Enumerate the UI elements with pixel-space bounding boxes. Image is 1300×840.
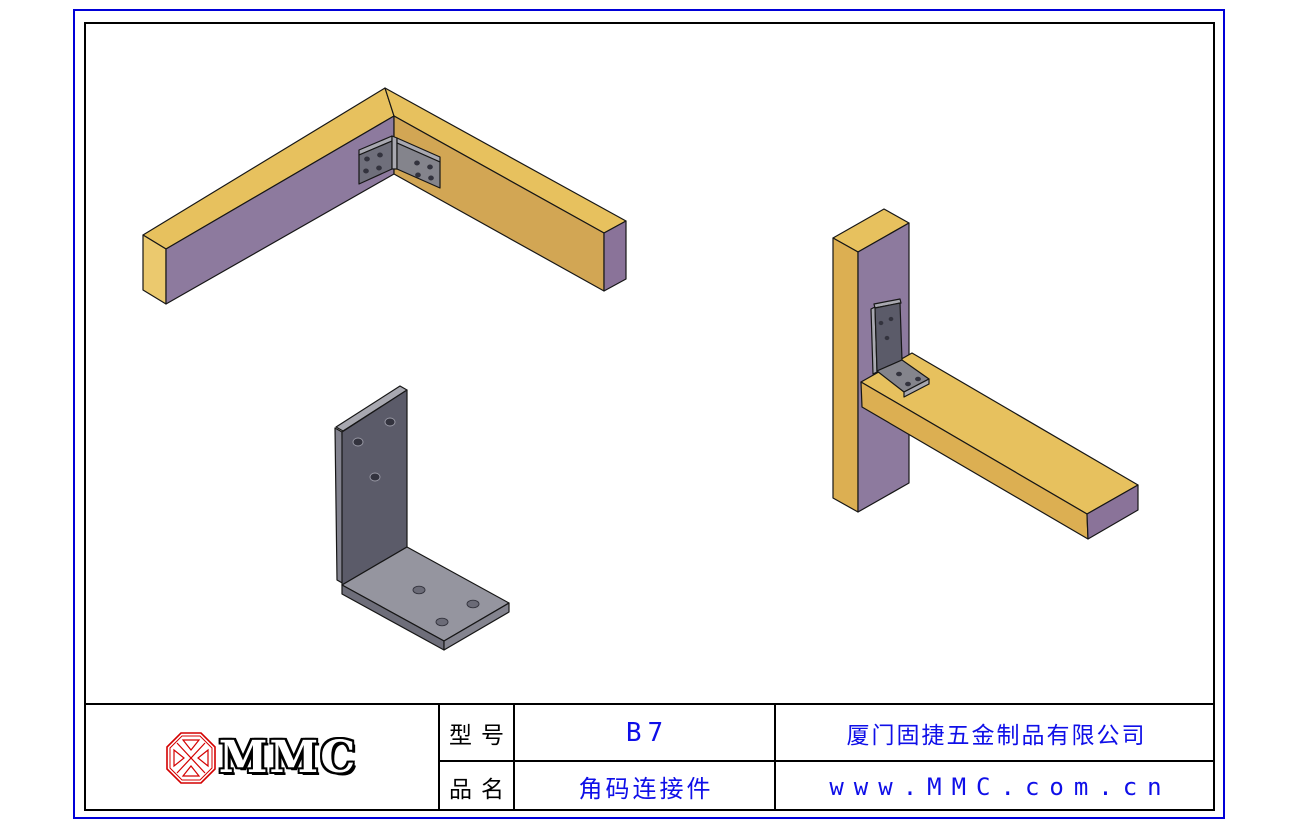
brand-name: MMC (219, 736, 357, 780)
bracket-hole (378, 153, 383, 157)
bracket-hole (897, 372, 902, 376)
model-label: 型号 (449, 716, 513, 750)
logo-cell: MMC (84, 705, 438, 811)
view-corner-joint (143, 88, 626, 304)
bracket-hole (415, 161, 420, 165)
product-value: 角码连接件 (579, 769, 714, 804)
right-beam-end-cap (604, 221, 626, 291)
bracket-hole (885, 336, 889, 339)
website-url: www.MMC.com.cn (829, 773, 1171, 801)
bracket-hole (467, 600, 479, 608)
view-tee-joint (833, 209, 1138, 539)
bracket-hole (385, 418, 395, 426)
bracket-hole (906, 382, 911, 386)
company-cell: 厦门固捷五金制品有限公司 (774, 705, 1215, 760)
company-name: 厦门固捷五金制品有限公司 (847, 716, 1147, 750)
bracket-hole (365, 157, 370, 161)
product-label: 品名 (449, 770, 513, 804)
mmc-diamond-icon (165, 731, 217, 785)
bracket-hole (916, 377, 921, 381)
model-value: B7 (626, 718, 669, 748)
bracket-hole (413, 586, 425, 594)
bracket-hole (416, 173, 421, 177)
model-label-cell: 型号 (438, 705, 513, 760)
post-left-face (833, 238, 858, 512)
bracket-hole (370, 473, 380, 481)
bracket-hole (364, 169, 369, 173)
bracket-hole (429, 176, 434, 180)
model-value-cell: B7 (513, 705, 774, 760)
product-value-cell: 角码连接件 (513, 760, 774, 811)
corner-bracket-fold-edge (392, 136, 397, 169)
view-angle-bracket (335, 386, 509, 650)
website-cell: www.MMC.com.cn (774, 760, 1215, 811)
bracket-hole (377, 166, 382, 170)
title-block: MMC 型号 B7 厦门固捷五金制品有限公司 品名 角码连接件 www.MMC.… (84, 703, 1215, 811)
drawing-sheet: MMC 型号 B7 厦门固捷五金制品有限公司 品名 角码连接件 www.MMC.… (0, 0, 1300, 840)
bracket-hole (353, 438, 363, 446)
bracket-hole (889, 317, 893, 320)
bracket-hole (436, 618, 448, 626)
product-label-cell: 品名 (438, 760, 513, 811)
bracket-hole (428, 165, 433, 169)
bracket-hole (879, 321, 883, 324)
